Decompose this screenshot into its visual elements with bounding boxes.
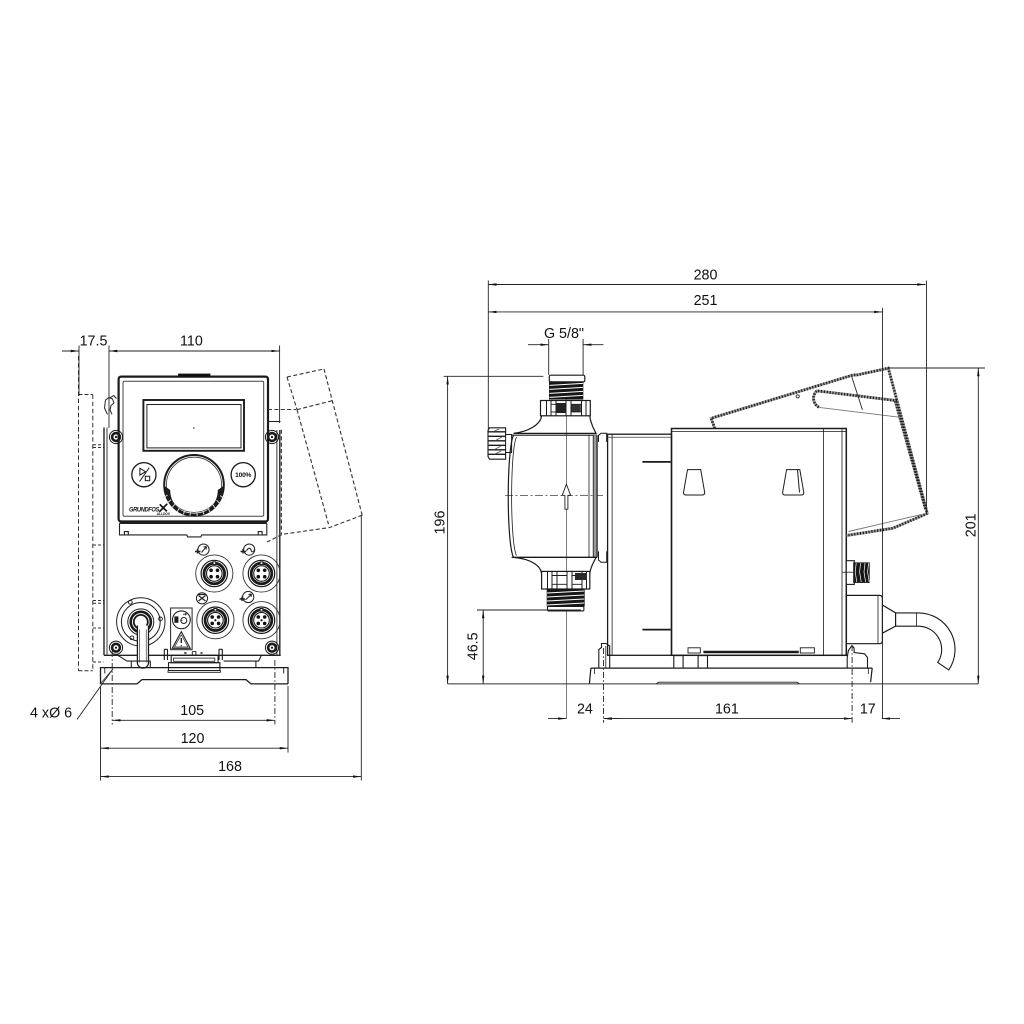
svg-text:GRUNDFOS: GRUNDFOS xyxy=(129,506,160,513)
svg-text:G 5/8": G 5/8" xyxy=(544,326,584,342)
svg-text:201: 201 xyxy=(963,513,979,537)
svg-text:251: 251 xyxy=(694,293,718,309)
svg-text:161: 161 xyxy=(715,702,739,718)
svg-text:17: 17 xyxy=(860,702,876,718)
svg-text:120: 120 xyxy=(181,731,205,747)
svg-text:100%: 100% xyxy=(235,472,251,479)
svg-text:4 xØ 6: 4 xØ 6 xyxy=(30,706,72,722)
svg-text:280: 280 xyxy=(694,268,718,284)
svg-text:105: 105 xyxy=(180,703,204,719)
svg-text:24: 24 xyxy=(577,702,593,718)
svg-text:17.5: 17.5 xyxy=(80,333,108,349)
svg-text:196: 196 xyxy=(432,511,448,535)
svg-text:ALLDOS: ALLDOS xyxy=(156,512,171,516)
svg-text:46.5: 46.5 xyxy=(466,632,482,660)
svg-text:168: 168 xyxy=(218,759,242,775)
svg-text:110: 110 xyxy=(180,333,203,349)
